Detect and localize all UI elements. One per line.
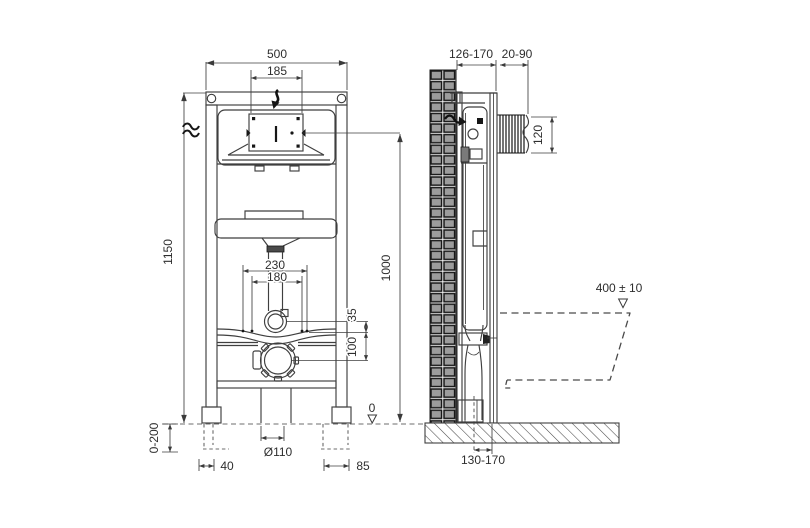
wc-frame-installation-drawing: 500 185 1150 230 180 35 10: [0, 0, 810, 528]
floor-datum-label: 0: [369, 401, 376, 415]
finishing-depth-label: 20-90: [502, 47, 533, 61]
installation-depth-label: 126-170: [449, 47, 493, 61]
panel-width-label: 185: [267, 64, 287, 78]
technical-drawing-page: 500 185 1150 230 180 35 10: [0, 0, 810, 528]
frame-height-label: 1150: [161, 239, 175, 265]
water-inlet-arrow-icon: [276, 90, 278, 103]
supply-pipe-section: [461, 147, 469, 162]
outlet-offset-label: 100: [345, 337, 359, 357]
outlet-diameter-label: Ø110: [264, 445, 293, 459]
frame-width-label: 500: [267, 47, 287, 61]
panel-opening-height-label: 120: [531, 125, 545, 145]
bowl-top-height-label: 400 ± 10: [596, 281, 643, 295]
floor-slab: [425, 423, 619, 443]
flush-elbow-offset-label: 35: [345, 308, 359, 322]
background: [0, 0, 810, 528]
fixing-inner-label: 180: [267, 270, 287, 284]
right-foot-label: 85: [356, 459, 370, 473]
leg-adjustment-label: 0-200: [147, 422, 161, 453]
left-foot-label: 40: [220, 459, 234, 473]
wall-section: [430, 70, 456, 423]
panel-center-height-label: 1000: [379, 254, 393, 281]
flush-pipe-collar: [267, 246, 284, 252]
outlet-wall-distance-label: 130-170: [461, 453, 505, 467]
floor-section: [425, 423, 619, 443]
